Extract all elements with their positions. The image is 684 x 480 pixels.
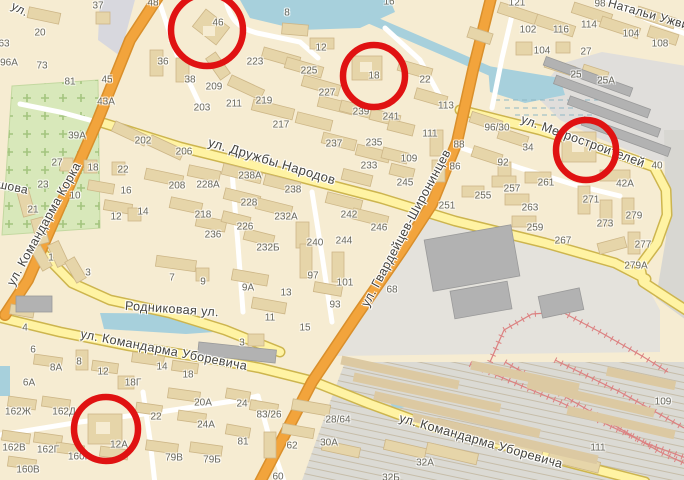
building-footprint	[300, 244, 312, 278]
building-footprint	[150, 50, 163, 76]
building-footprint	[432, 160, 445, 182]
building-footprint	[248, 334, 264, 346]
building-footprint	[512, 216, 536, 227]
building-footprint	[84, 160, 97, 173]
building-footprint	[516, 42, 532, 55]
building-footprint	[360, 62, 372, 72]
building-footprint	[310, 38, 334, 49]
building-footprint	[282, 23, 309, 36]
building-footprint	[112, 162, 125, 175]
building-footprint	[600, 200, 612, 226]
building-footprint	[128, 208, 141, 221]
building-footprint	[600, 170, 630, 181]
building-footprint	[60, 158, 73, 171]
building-footprint	[203, 26, 215, 36]
building-footprint	[76, 350, 88, 370]
building-footprint	[572, 140, 584, 152]
building-footprint	[430, 130, 443, 156]
building-footprint	[332, 252, 344, 282]
building-footprint	[628, 232, 640, 254]
building-footprint	[96, 422, 110, 434]
building-footprint	[462, 186, 484, 197]
building-footprint	[16, 296, 52, 312]
building-footprint	[176, 58, 189, 82]
building-footprint	[196, 268, 209, 281]
building-footprint	[118, 376, 134, 389]
building-footprint	[556, 42, 570, 53]
map-viewport[interactable]: ул. Дружбы Народовул. Метростроителейул.…	[0, 0, 684, 480]
building-footprint	[622, 198, 634, 224]
building-footprint	[492, 176, 516, 187]
building-footprint	[578, 186, 590, 214]
basemap-layer	[0, 0, 684, 480]
building-footprint	[525, 172, 551, 183]
building-footprint	[264, 432, 276, 458]
building-footprint	[505, 194, 529, 205]
building-footprint	[96, 12, 110, 24]
